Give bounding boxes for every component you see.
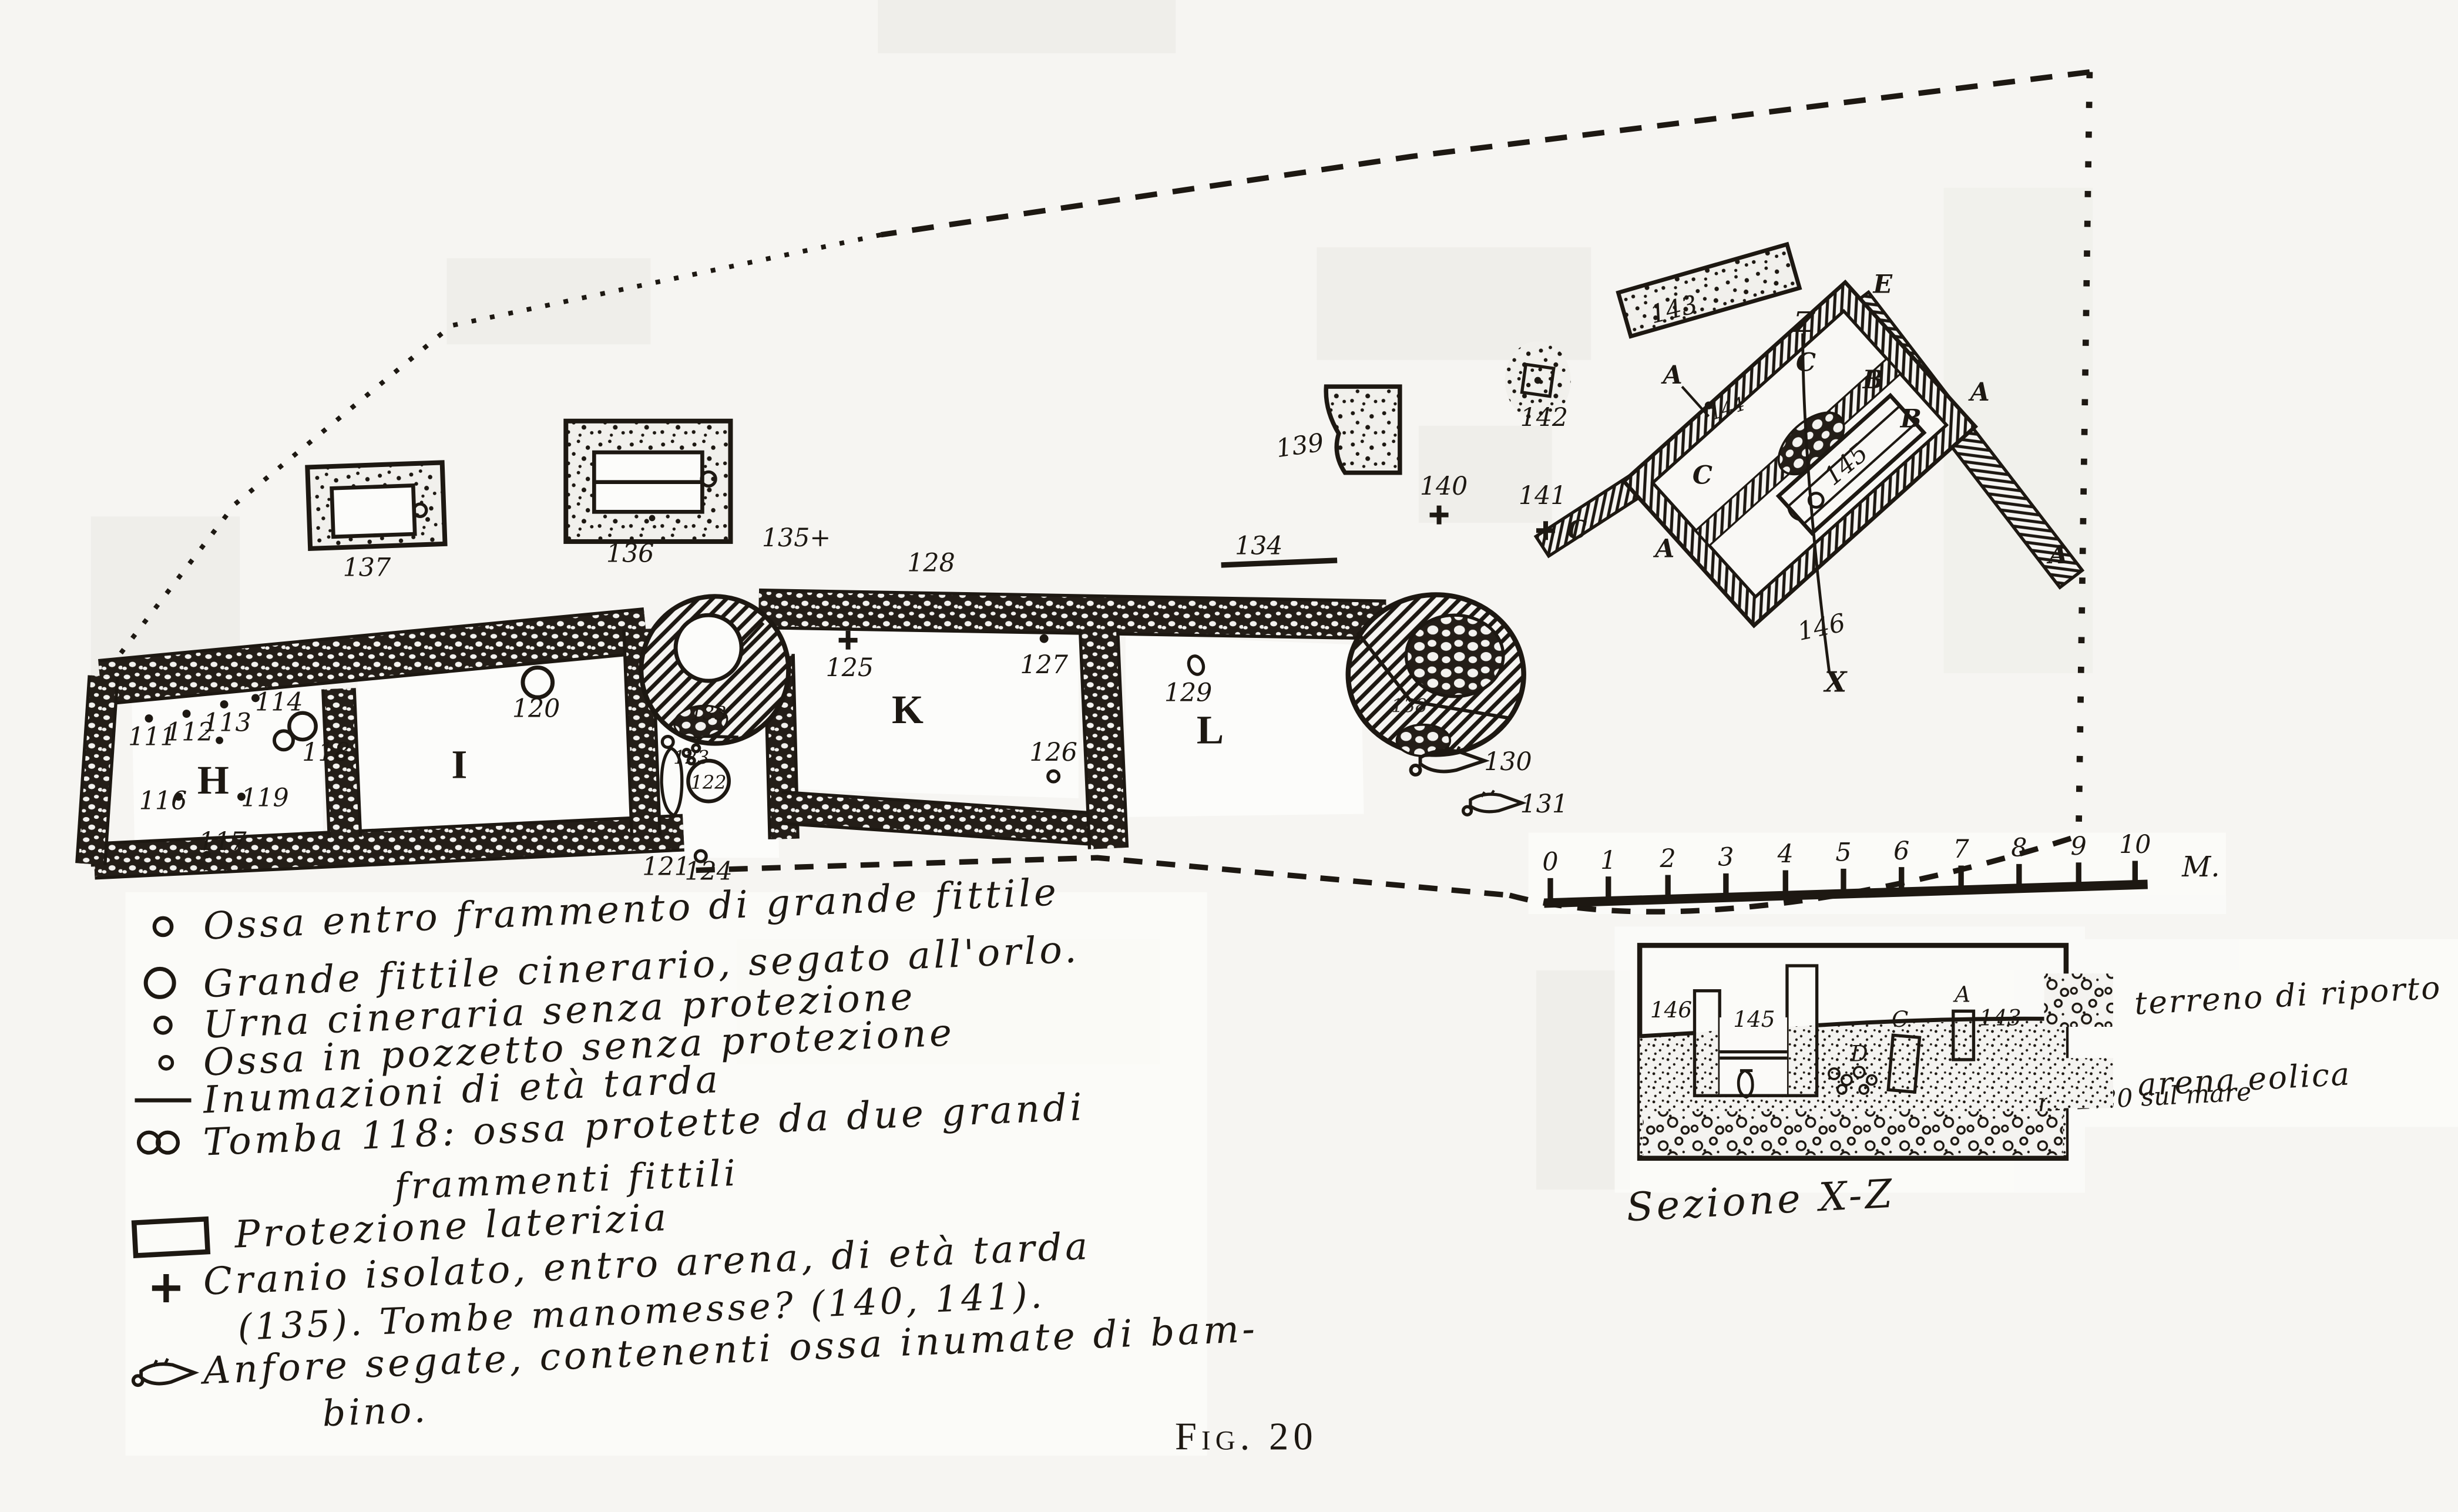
scale-tick-3: 3 bbox=[1718, 843, 1734, 872]
tomb-139-label: 139 bbox=[1274, 428, 1326, 463]
tomb-146-label: 146 bbox=[1795, 608, 1848, 647]
tomb-126-label: 126 bbox=[1029, 738, 1077, 767]
scale-tick-10: 10 bbox=[2119, 830, 2151, 859]
tomb-130-label: 130 bbox=[1484, 747, 1532, 777]
tomb-129-label: 129 bbox=[1164, 678, 1212, 708]
letter-Z-label: Z bbox=[1793, 306, 1816, 339]
tomb-131-label: 131 bbox=[1520, 789, 1568, 819]
scale-tick-8: 8 bbox=[2011, 834, 2027, 863]
scale-tick-2: 2 bbox=[1660, 844, 1676, 873]
structure-137 bbox=[307, 462, 445, 548]
tomb-120-label: 120 bbox=[512, 694, 560, 723]
fine-dotted-sand-swatch bbox=[2047, 1058, 2113, 1108]
section-A-label: A bbox=[1953, 981, 1970, 1007]
tomb-119-label: 119 bbox=[241, 783, 288, 812]
tomb-116-label: 116 bbox=[139, 787, 187, 816]
section-cobble-band bbox=[1643, 1111, 2063, 1155]
tomb-135-label: 135+ bbox=[762, 523, 831, 553]
mound-138 bbox=[1348, 595, 1524, 756]
tomb-124-label: 124 bbox=[684, 857, 732, 886]
tomb-140-label: 140 bbox=[1420, 472, 1468, 501]
tomb-141-label: 141 bbox=[1519, 481, 1566, 510]
letter-B-label: B bbox=[1862, 365, 1884, 395]
figure-caption: Fig. 20 bbox=[1175, 1415, 1318, 1458]
room-K-label: K bbox=[892, 687, 924, 732]
letter-E-label: E bbox=[1872, 270, 1892, 299]
tomb-134-label: 134 bbox=[1235, 531, 1282, 560]
scale-tick-1: 1 bbox=[1600, 846, 1616, 875]
scale-tick-0: 0 bbox=[1542, 848, 1558, 877]
section-143-label: 143 bbox=[1979, 1004, 2021, 1030]
excavation-plan-figure: 111 112 113 114 116 117 118 119 120 121 … bbox=[0, 0, 2458, 1512]
scale-tick-4: 4 bbox=[1777, 839, 1794, 869]
room-I-label: I bbox=[451, 741, 467, 787]
letter-B-label: B bbox=[1900, 404, 1922, 434]
tomb-142-label: 142 bbox=[1520, 403, 1568, 432]
coarse-dotted-terrain-swatch bbox=[2044, 973, 2113, 1027]
tomb-128-label: 128 bbox=[907, 549, 955, 578]
letter-A-label: A bbox=[1968, 378, 1990, 407]
tomb-113-label: 113 bbox=[203, 708, 251, 737]
letter-X-label: X bbox=[1823, 666, 1848, 699]
tomb-117-label: 117 bbox=[199, 827, 247, 856]
underline-134 bbox=[1221, 560, 1337, 565]
room-H-label: H bbox=[197, 757, 229, 802]
letter-C-label: C bbox=[1567, 516, 1587, 545]
boundary-top-dashed bbox=[881, 72, 2090, 235]
scale-tick-6: 6 bbox=[1893, 836, 1909, 866]
tomb-138-label: 138 bbox=[1391, 694, 1427, 717]
tomb-127-label: 127 bbox=[1020, 650, 1068, 680]
letter-C-label: C bbox=[1796, 348, 1816, 378]
scale-tick-5: 5 bbox=[1835, 838, 1851, 868]
tomb-114-label: 114 bbox=[255, 688, 303, 717]
section-145-label: 145 bbox=[1733, 1006, 1775, 1032]
section-D-label: D bbox=[1850, 1041, 1868, 1067]
letter-A-label: A bbox=[1653, 535, 1674, 564]
letter-A-label: A bbox=[1661, 361, 1683, 390]
amphora-131 bbox=[1463, 791, 1522, 815]
patch-139 bbox=[1326, 387, 1400, 473]
tomb-118-label: 118 bbox=[302, 738, 350, 767]
letter-A-label: A bbox=[2046, 540, 2068, 570]
tomb-123-label: 123 bbox=[673, 746, 709, 768]
scale-tick-9: 9 bbox=[2071, 832, 2087, 861]
tomb-137-label: 137 bbox=[343, 553, 391, 583]
section-146-label: 146 bbox=[1650, 997, 1692, 1023]
structure-136 bbox=[566, 421, 730, 542]
scale-unit-label: M. bbox=[2181, 851, 2219, 883]
label-A-leader bbox=[1682, 387, 1708, 416]
letter-C-label: C bbox=[1693, 461, 1712, 490]
section-C-label: C bbox=[1892, 1006, 1909, 1032]
scale-tick-7: 7 bbox=[1953, 835, 1970, 864]
bar-143 bbox=[1618, 244, 1800, 337]
tomb-133-label: 133 bbox=[691, 703, 727, 725]
legend-item-text2: bino. bbox=[321, 1389, 429, 1434]
room-L-label: L bbox=[1197, 707, 1224, 752]
tomb-122-label: 122 bbox=[691, 771, 727, 794]
tomb-121-label: 121 bbox=[642, 852, 690, 882]
tomb-136-label: 136 bbox=[606, 539, 654, 569]
tomb-125-label: 125 bbox=[826, 653, 874, 683]
